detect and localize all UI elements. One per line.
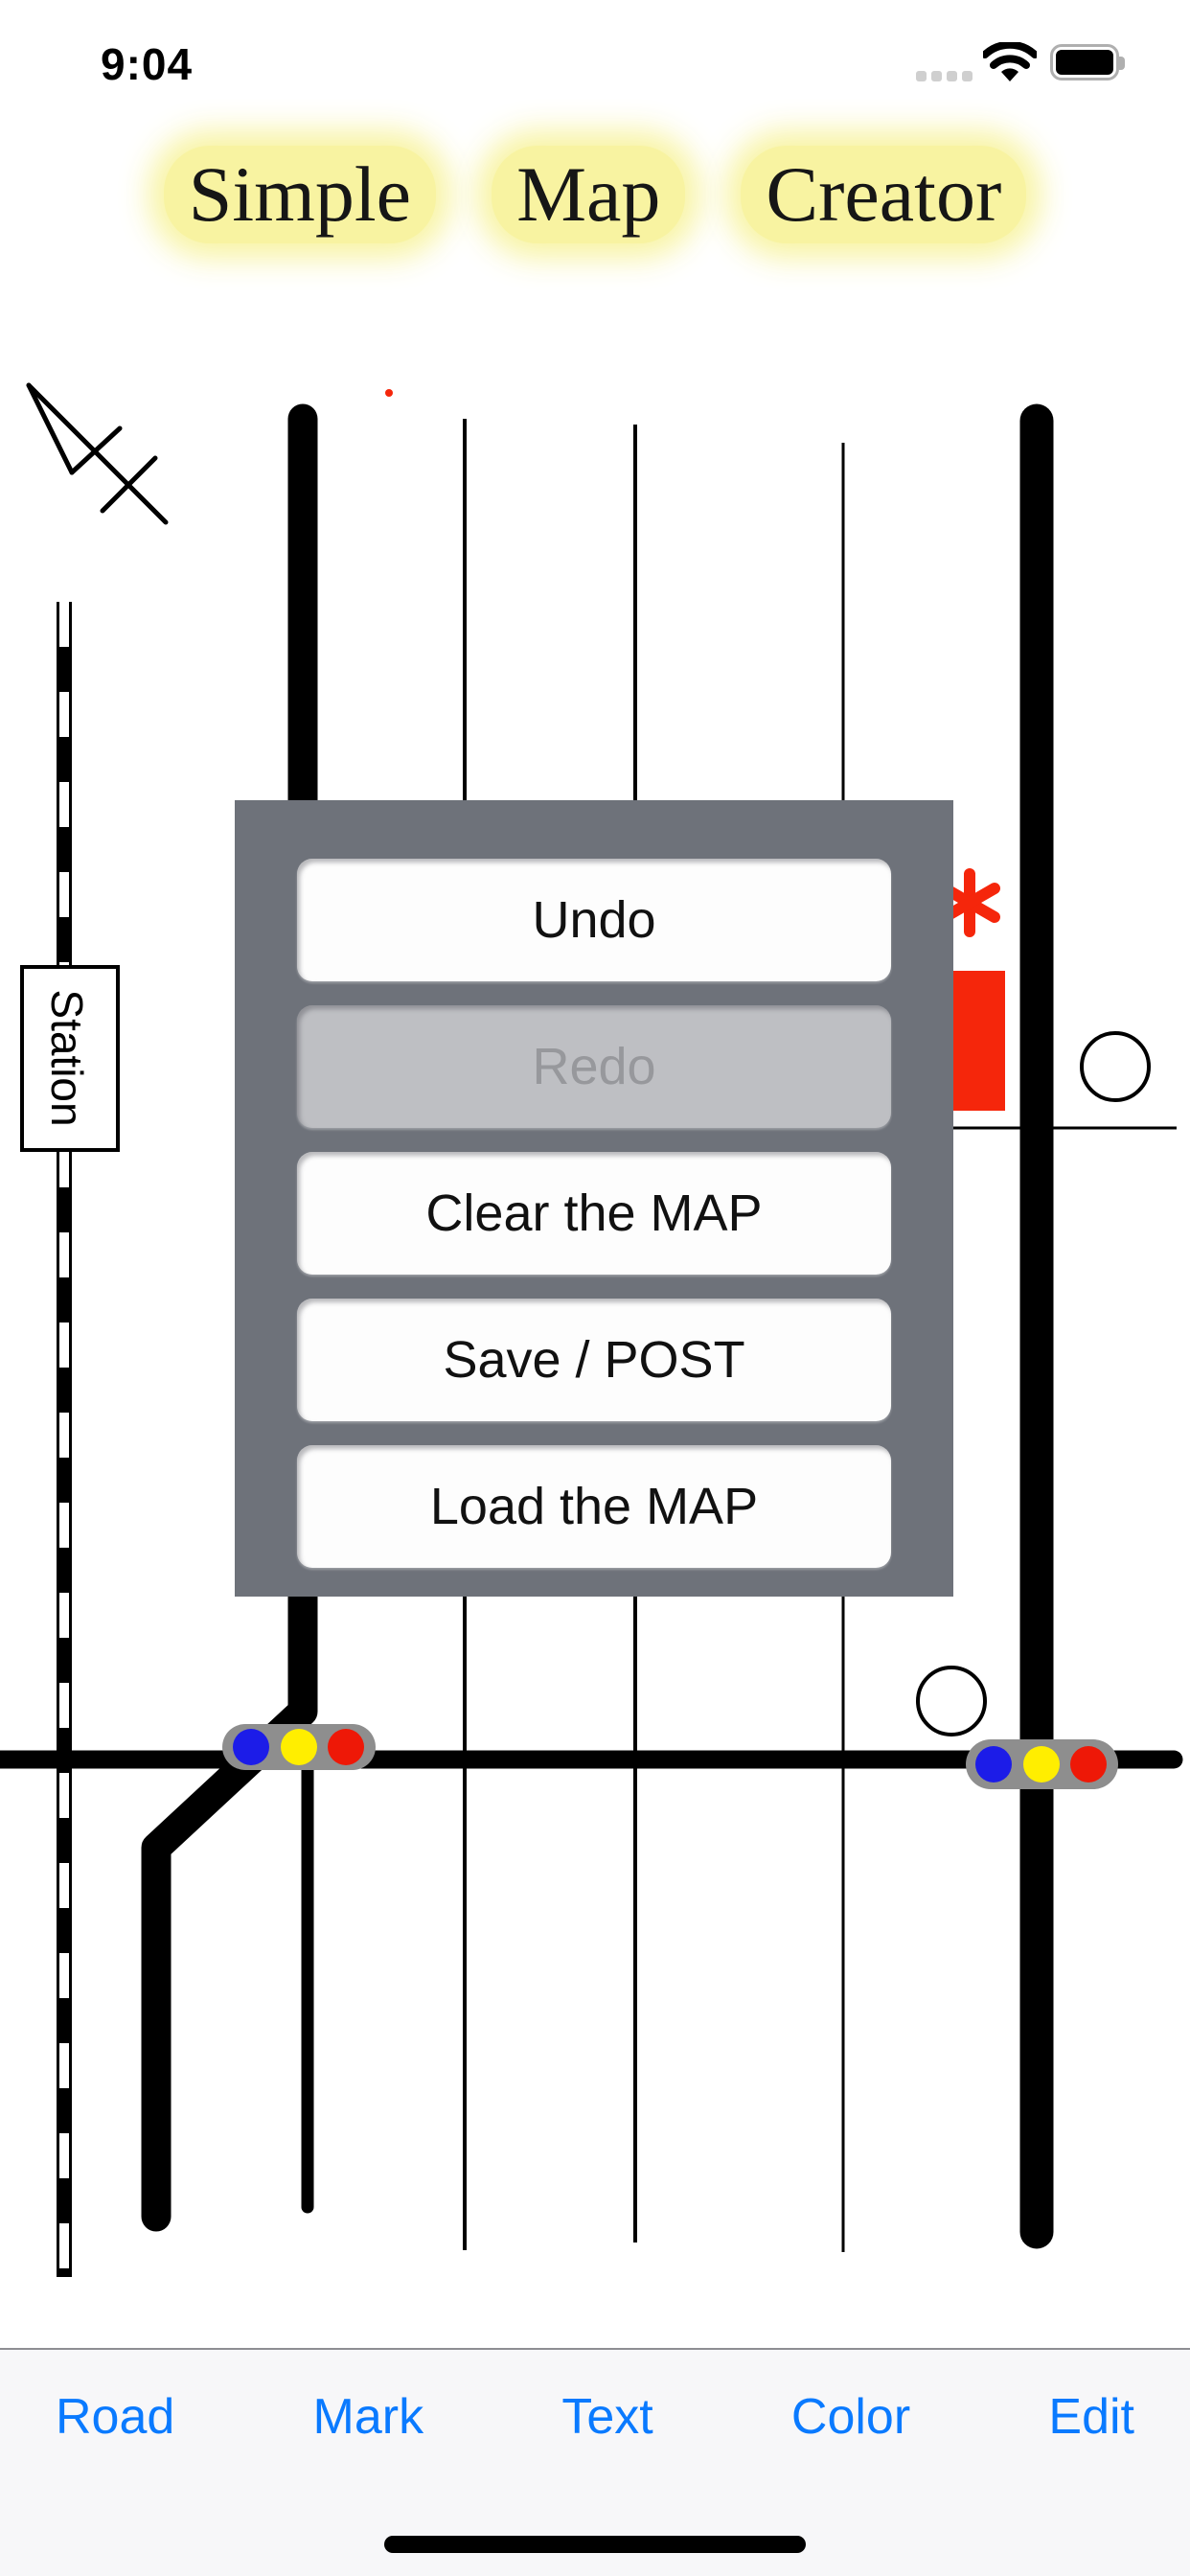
tab-edit[interactable]: Edit bbox=[1048, 2388, 1134, 2446]
edit-menu-popup: Undo Redo Clear the MAP Save / POST Load… bbox=[235, 800, 953, 1597]
tab-text[interactable]: Text bbox=[561, 2388, 652, 2446]
save-post-button[interactable]: Save / POST bbox=[297, 1299, 891, 1421]
tab-road[interactable]: Road bbox=[56, 2388, 174, 2446]
red-dot-marker bbox=[385, 389, 393, 397]
clear-map-button[interactable]: Clear the MAP bbox=[297, 1152, 891, 1275]
traffic-light-icon bbox=[222, 1724, 376, 1770]
tab-mark[interactable]: Mark bbox=[313, 2388, 424, 2446]
home-indicator[interactable] bbox=[384, 2536, 806, 2553]
undo-button[interactable]: Undo bbox=[297, 859, 891, 981]
circle-marker-lower bbox=[918, 1667, 985, 1735]
traffic-light-icon bbox=[966, 1739, 1118, 1789]
station-label: Station bbox=[42, 989, 92, 1126]
circle-marker-upper bbox=[1082, 1033, 1149, 1100]
app-screen: 9:04 Simple Map Creator bbox=[0, 0, 1190, 2576]
load-map-button[interactable]: Load the MAP bbox=[297, 1445, 891, 1568]
redo-button: Redo bbox=[297, 1005, 891, 1128]
north-arrow-icon bbox=[29, 385, 166, 522]
station-sign: Station bbox=[22, 967, 118, 1150]
tab-color[interactable]: Color bbox=[791, 2388, 910, 2446]
